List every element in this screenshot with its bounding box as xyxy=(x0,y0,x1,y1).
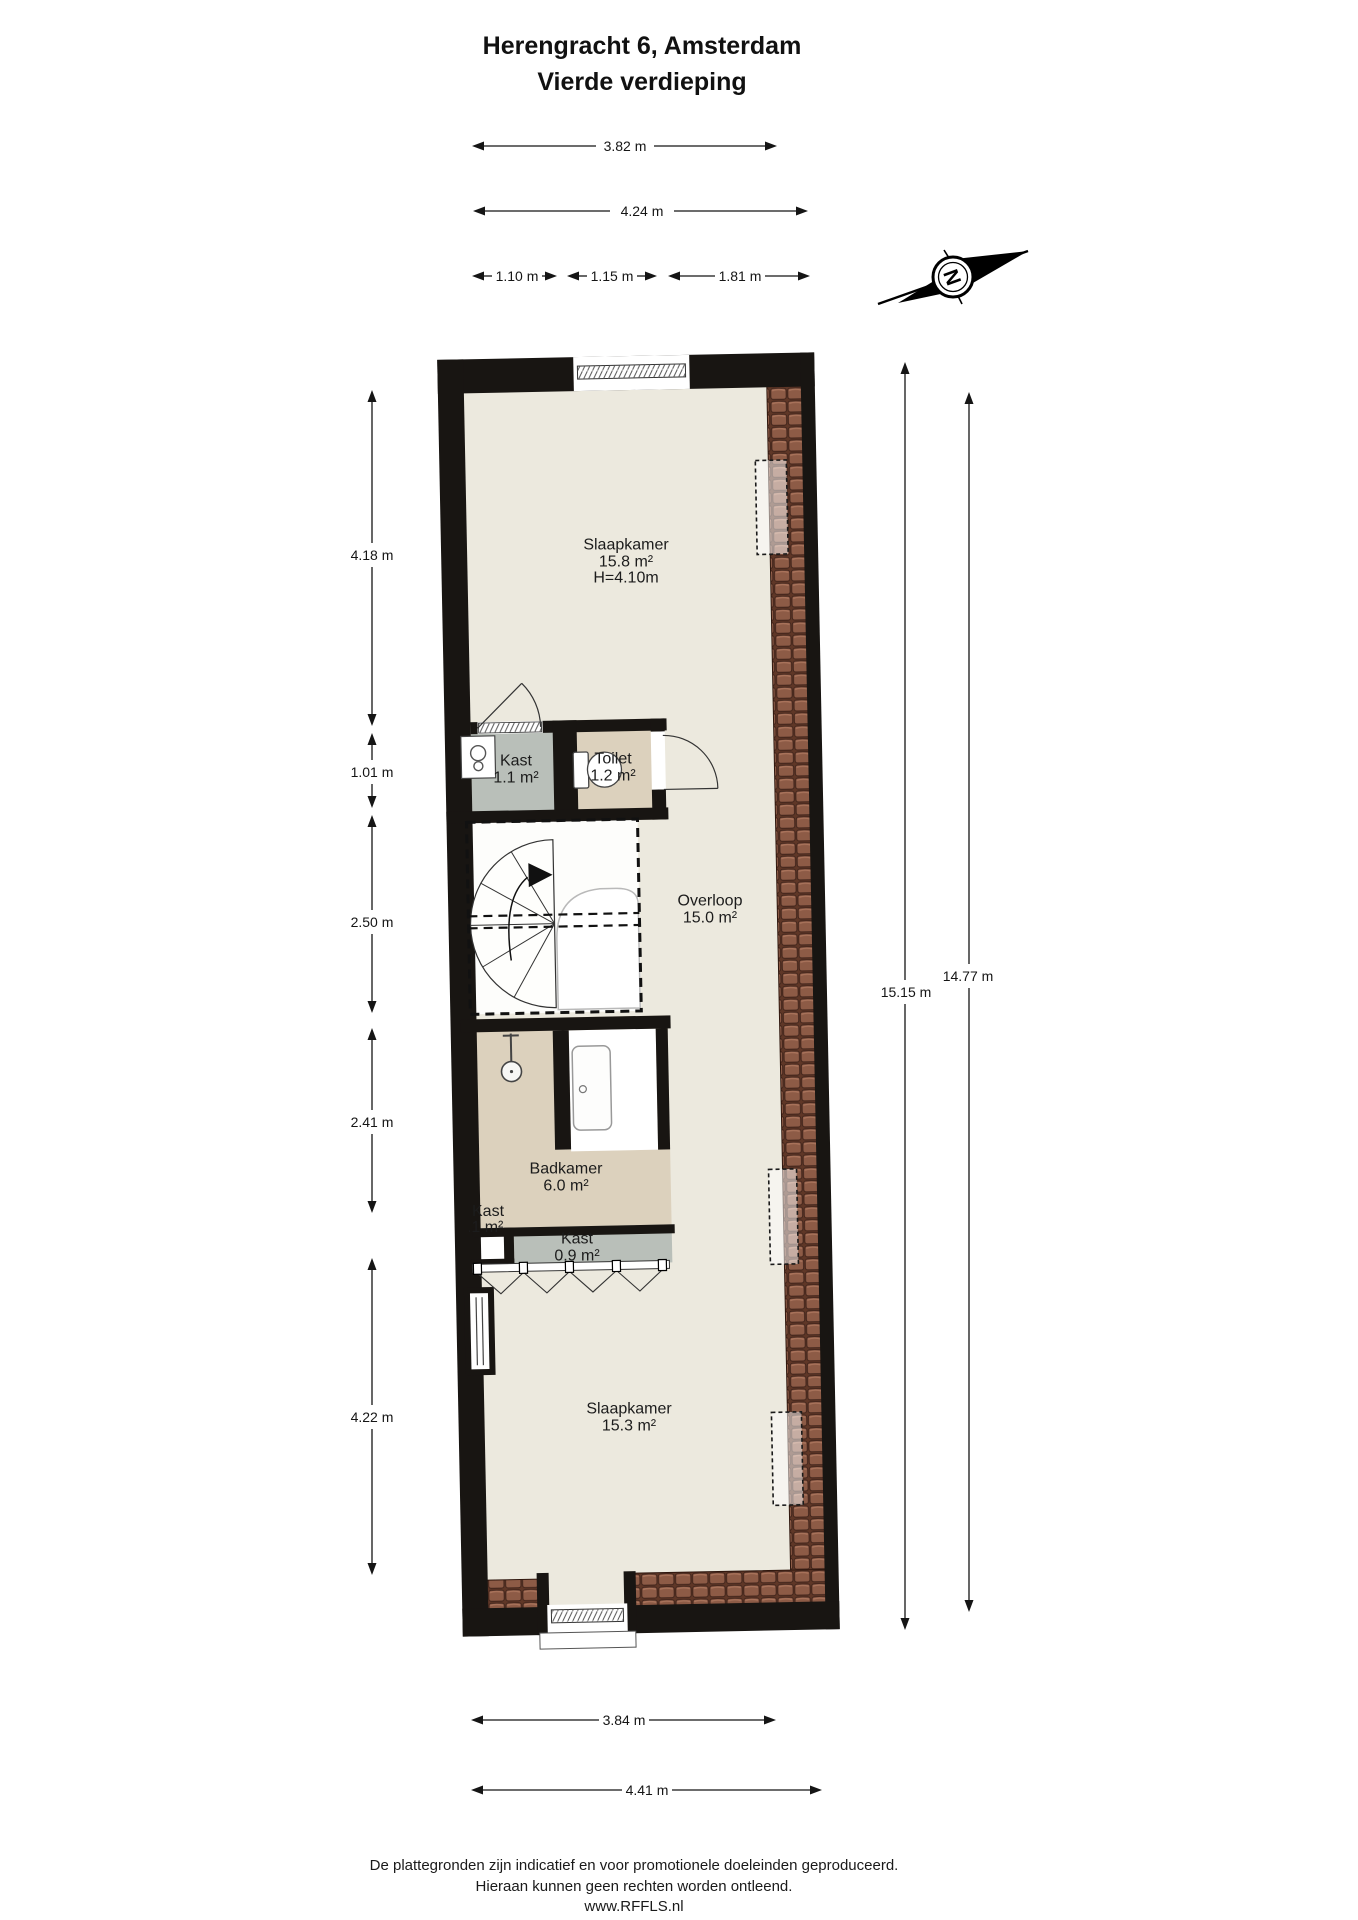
window-icon-bottom xyxy=(539,1603,636,1649)
bathtub-icon xyxy=(572,1046,612,1131)
compass-north-icon: N xyxy=(878,250,1028,304)
dim-left-101: 1.01 m xyxy=(351,765,394,779)
dim-left-422: 4.22 m xyxy=(351,1410,394,1424)
room-label-kast-boiler: Kast 1.1 m² xyxy=(493,754,538,787)
dim-bottom-441: 4.41 m xyxy=(626,1783,669,1797)
room-label-kast-klein-area: 0.1 m² xyxy=(469,1220,509,1237)
room-label-badkamer: Badkamer 6.0 m² xyxy=(530,1162,603,1195)
dim-bottom-384: 3.84 m xyxy=(603,1713,646,1727)
dim-top-110: 1.10 m xyxy=(496,269,539,283)
dim-top-424: 4.24 m xyxy=(621,204,664,218)
title-address: Herengracht 6, Amsterdam xyxy=(483,28,802,64)
disclaimer-website: www.RFFLS.nl xyxy=(370,1897,899,1918)
disclaimer-line-2: Hieraan kunnen geen rechten worden ontle… xyxy=(370,1877,899,1898)
room-label-kast-vouwdeuren: Kast 0.9 m² xyxy=(554,1232,599,1265)
floorplan-page: N Herengracht 6, Amsterdam Vierde verdie… xyxy=(0,0,1358,1920)
boiler-icon xyxy=(461,736,496,779)
window-icon-top xyxy=(573,355,690,391)
dim-left-241: 2.41 m xyxy=(351,1115,394,1129)
window-icon-left xyxy=(470,1293,490,1369)
roof-window-icon xyxy=(769,1169,799,1265)
room-label-toilet: Toilet 1.2 m² xyxy=(590,752,635,785)
dim-left-250: 2.50 m xyxy=(351,915,394,929)
dim-left-418: 4.18 m xyxy=(351,548,394,562)
title-floor: Vierde verdieping xyxy=(483,64,802,100)
roof-window-icon xyxy=(755,460,788,555)
roof-window-icon xyxy=(771,1412,803,1506)
room-label-overloop: Overloop 15.0 m² xyxy=(678,894,743,927)
disclaimer-line-1: De plattegronden zijn indicatief en voor… xyxy=(370,1856,899,1877)
room-label-slaapkamer-top: Slaapkamer 15.8 m² H=4.10m xyxy=(583,537,668,587)
room-label-kast-klein: Kast xyxy=(472,1204,504,1221)
disclaimer: De plattegronden zijn indicatief en voor… xyxy=(370,1856,899,1918)
room-label-slaapkamer-onder: Slaapkamer 15.3 m² xyxy=(586,1402,671,1435)
dim-top-382: 3.82 m xyxy=(604,139,647,153)
page-title: Herengracht 6, Amsterdam Vierde verdiepi… xyxy=(483,28,802,100)
dim-top-115: 1.15 m xyxy=(591,269,634,283)
dim-right-1515: 15.15 m xyxy=(881,985,932,999)
dim-top-181: 1.81 m xyxy=(719,269,762,283)
floor-plan-svg: N xyxy=(0,0,1358,1920)
dim-right-1477: 14.77 m xyxy=(943,969,994,983)
